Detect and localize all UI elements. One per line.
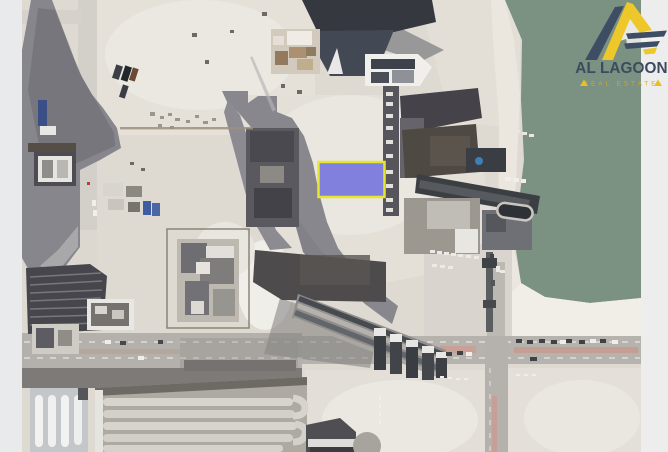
svg-text:AL LAGOON: AL LAGOON	[575, 60, 667, 77]
svg-text:REAL ESTATE: REAL ESTATE	[584, 81, 659, 88]
